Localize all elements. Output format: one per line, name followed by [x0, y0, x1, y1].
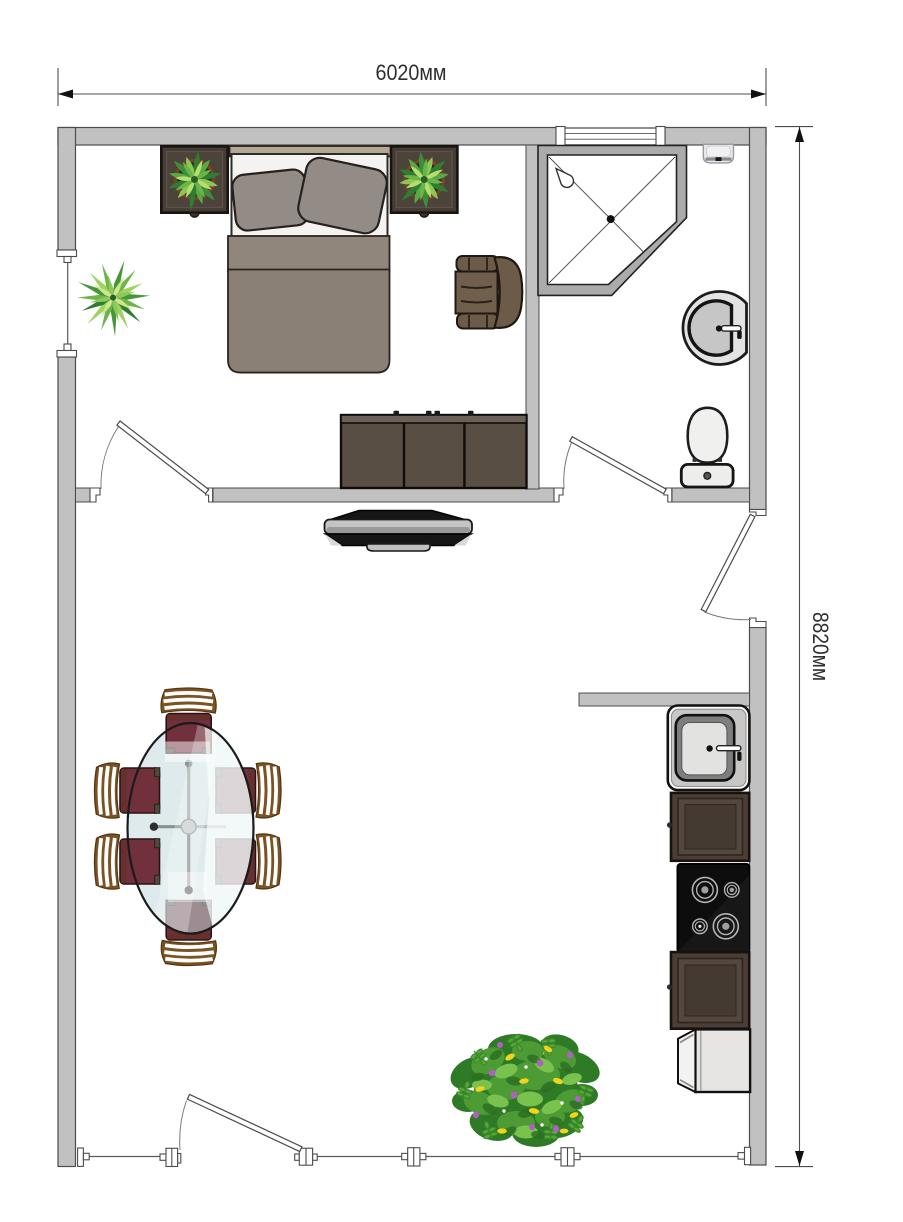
svg-text:8820мм: 8820мм	[808, 612, 833, 681]
svg-text:6020мм: 6020мм	[376, 60, 447, 85]
